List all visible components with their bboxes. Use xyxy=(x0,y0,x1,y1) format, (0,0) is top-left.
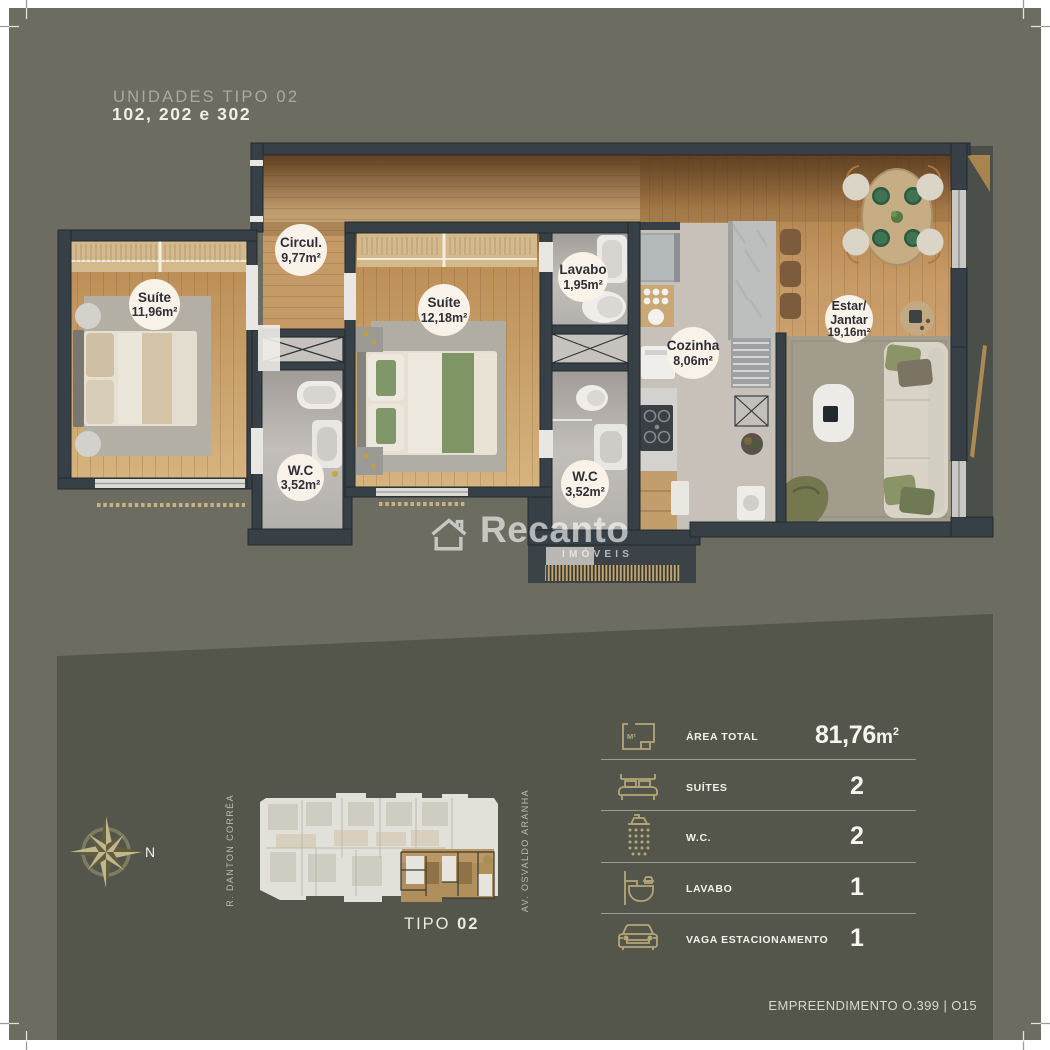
svg-text:M²: M² xyxy=(627,732,636,741)
